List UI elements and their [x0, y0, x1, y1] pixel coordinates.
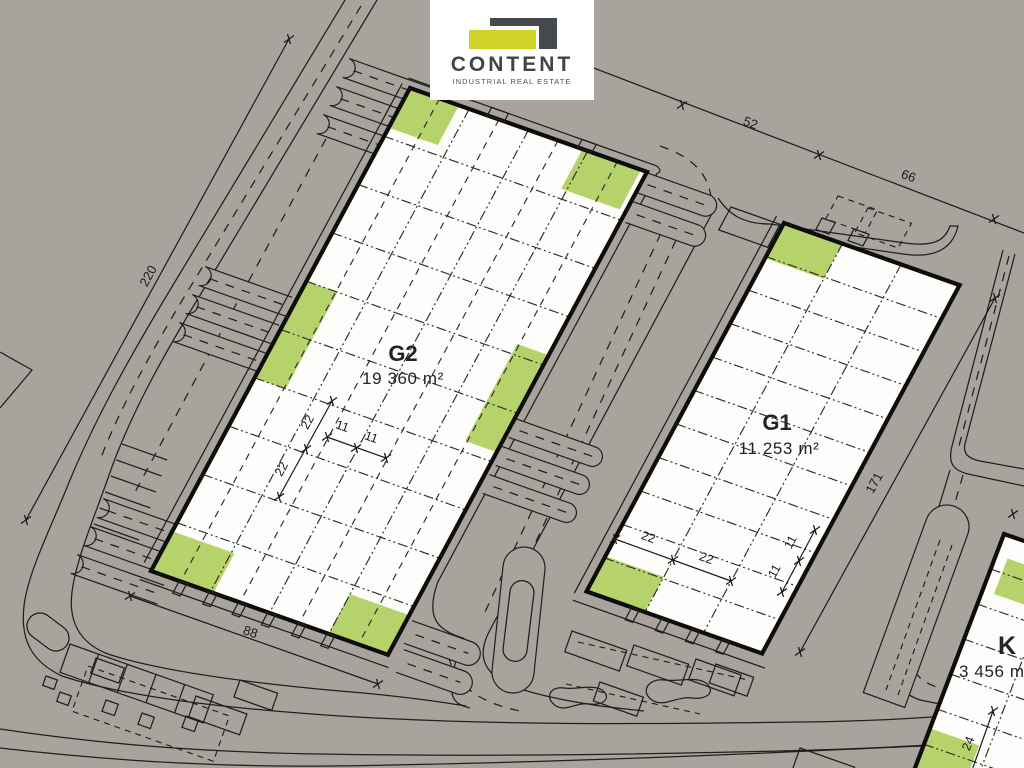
- svg-text:INDUSTRIAL REAL ESTATE: INDUSTRIAL REAL ESTATE: [453, 77, 572, 86]
- svg-text:K: K: [998, 632, 1016, 660]
- svg-text:G2: G2: [388, 341, 417, 366]
- svg-text:CONTENT: CONTENT: [451, 53, 574, 76]
- svg-text:19 360 m²: 19 360 m²: [362, 369, 444, 388]
- svg-text:G1: G1: [762, 410, 791, 435]
- svg-text:3 456 m²: 3 456 m²: [959, 662, 1024, 681]
- svg-text:11 253 m²: 11 253 m²: [739, 439, 820, 458]
